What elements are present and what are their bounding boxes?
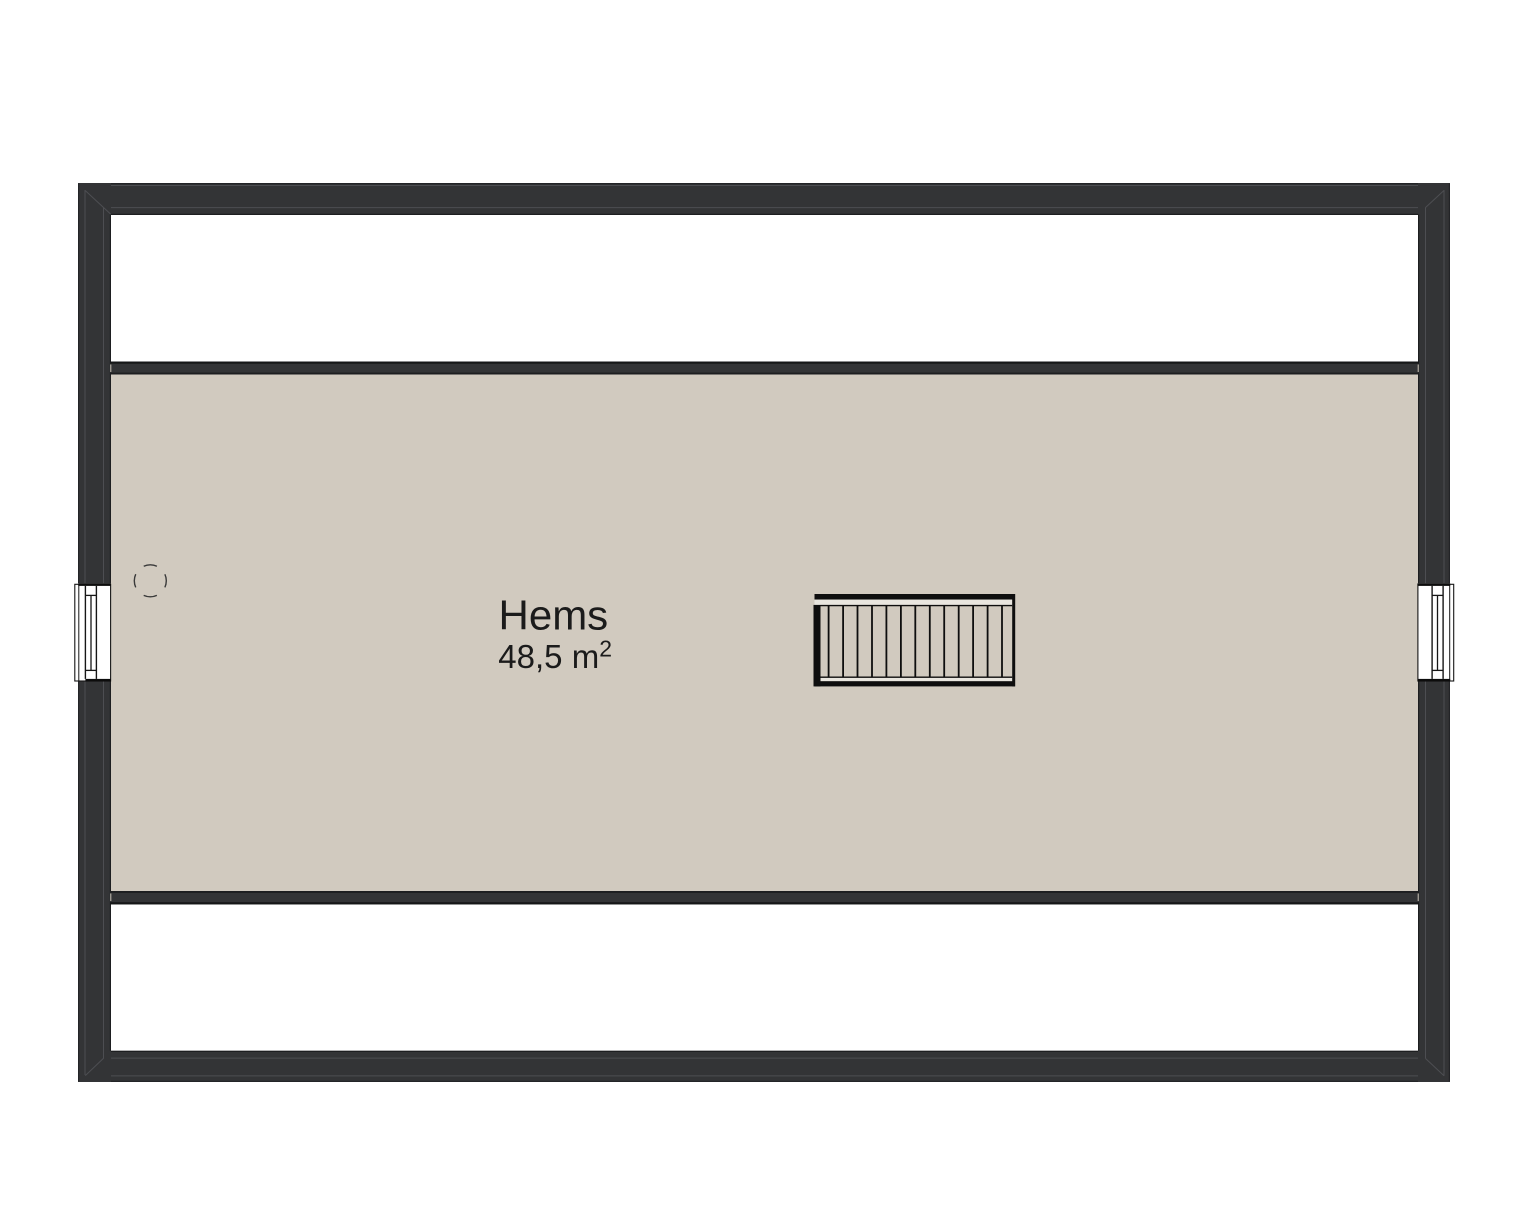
svg-text:Hems: Hems (499, 592, 609, 639)
svg-text:48,5 m2: 48,5 m2 (498, 636, 612, 676)
